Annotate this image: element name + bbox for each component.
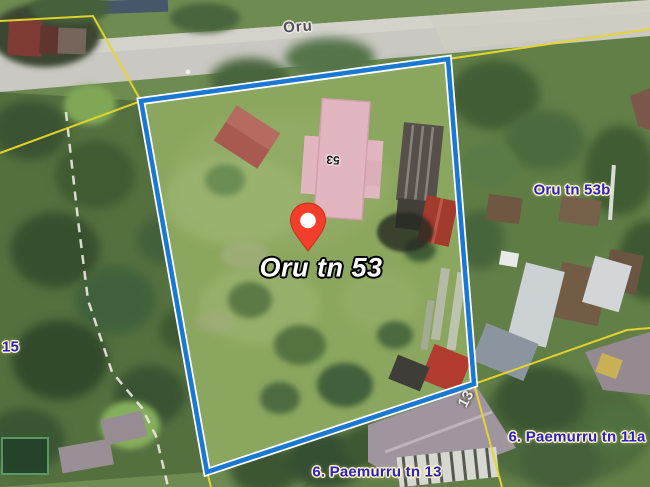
selected-parcel-label: Oru tn 53 [259, 253, 382, 284]
neighbor-label-paemurru-13: 6. Paemurru tn 13 [312, 464, 441, 481]
map-pin-icon[interactable] [288, 201, 328, 257]
neighbor-label-oru-53b: Oru tn 53b [533, 182, 610, 199]
roof-number-label: 53 [326, 153, 340, 168]
neighbor-label-paemurru-11a: 6. Paemurru tn 11a [509, 429, 646, 446]
street-name-label: Oru [283, 17, 314, 36]
aerial-map-view[interactable]: Oru 53 13 Oru tn 53b 6. Paemurru tn 13 6… [0, 0, 650, 487]
neighbor-label-west-15: 15 [2, 339, 19, 356]
